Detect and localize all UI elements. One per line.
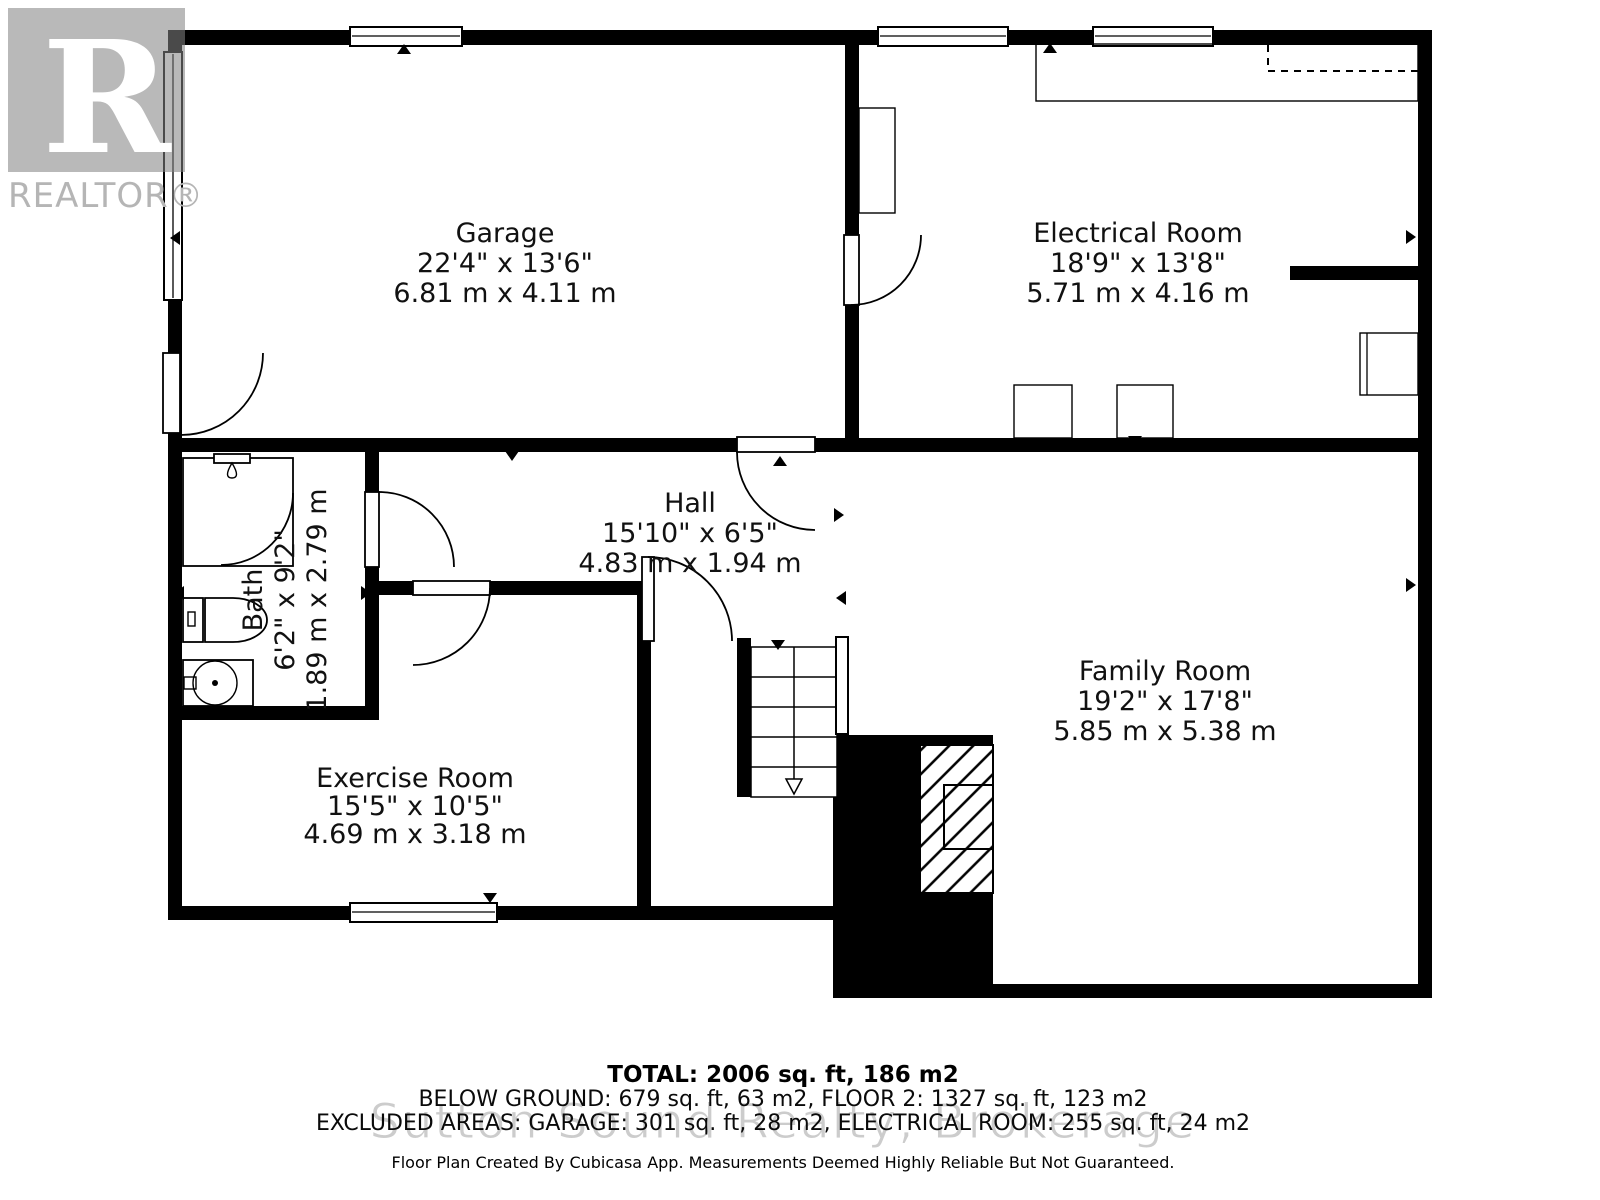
floor-plan: Garage 22'4" x 13'6" 6.81 m x 4.11 m Ele…	[0, 0, 1600, 1200]
electrical-counter	[1036, 44, 1418, 101]
toilet-tank	[183, 598, 203, 642]
appliance-1	[1014, 385, 1072, 438]
marker-right-icon	[834, 508, 844, 522]
realtor-logo-text: REALTOR®	[8, 176, 204, 216]
summary-below-ground: BELOW GROUND: 679 sq. ft, 63 m2, FLOOR 2…	[418, 1087, 1147, 1112]
garage-exterior-door-leaf	[163, 353, 180, 433]
garage-metric: 6.81 m x 4.11 m	[393, 278, 616, 309]
stairs	[751, 637, 848, 797]
bath-door-leaf	[365, 492, 379, 567]
realtor-logo-r-icon: R	[42, 6, 172, 189]
garage-name: Garage	[456, 218, 555, 249]
exercise-room-label: Exercise Room 15'5" x 10'5" 4.69 m x 3.1…	[303, 763, 526, 850]
hall-name: Hall	[664, 488, 716, 519]
marker-down-icon	[483, 893, 497, 903]
garage-electrical-door-arc	[851, 235, 921, 305]
exercise-door-leaf	[413, 581, 490, 595]
realtor-logo: R REALTOR®	[8, 6, 204, 216]
marker-right-icon	[1406, 230, 1416, 244]
bath-name: Bath	[238, 569, 269, 632]
summary-excluded-areas: EXCLUDED AREAS: GARAGE: 301 sq. ft, 28 m…	[316, 1111, 1250, 1136]
wall-stair-side	[737, 638, 751, 797]
hall-imperial: 15'10" x 6'5"	[602, 518, 778, 549]
wall-exercise-bottom	[168, 906, 833, 920]
electrical-metric: 5.71 m x 4.16 m	[1026, 278, 1249, 309]
family-metric: 5.85 m x 5.38 m	[1053, 716, 1276, 747]
sink-drain-icon	[212, 680, 218, 686]
family-name: Family Room	[1079, 656, 1251, 687]
stair-rail	[836, 637, 848, 734]
hall-metric: 4.83 m x 1.94 m	[578, 548, 801, 579]
electrical-wall-fixture	[859, 108, 895, 213]
hall-door-leaf	[737, 437, 815, 452]
electrical-dashed-area	[1268, 45, 1418, 71]
marker-down-icon	[505, 451, 519, 461]
fireplace	[920, 745, 993, 893]
electrical-name: Electrical Room	[1033, 218, 1243, 249]
marker-left-icon	[836, 591, 846, 605]
garage-imperial: 22'4" x 13'6"	[417, 248, 593, 279]
appliance-2	[1117, 385, 1173, 438]
electrical-panel	[1360, 333, 1418, 395]
wall-right	[1418, 30, 1432, 998]
hall-label: Hall 15'10" x 6'5" 4.83 m x 1.94 m	[578, 488, 801, 579]
exercise-metric: 4.69 m x 3.18 m	[303, 819, 526, 850]
wall-exercise-top	[365, 581, 651, 595]
summary-disclaimer: Floor Plan Created By Cubicasa App. Meas…	[392, 1153, 1175, 1172]
exercise-door-arc	[413, 588, 490, 665]
bath-imperial: 6'2" x 9'2"	[270, 529, 301, 671]
bath-metric: 1.89 m x 2.79 m	[302, 488, 333, 711]
marker-right-icon	[1406, 578, 1416, 592]
summary: TOTAL: 2006 sq. ft, 186 m2 BELOW GROUND:…	[316, 1062, 1250, 1172]
family-imperial: 19'2" x 17'8"	[1077, 686, 1253, 717]
wall-electrical-stub	[1290, 266, 1418, 280]
garage-label: Garage 22'4" x 13'6" 6.81 m x 4.11 m	[393, 218, 616, 309]
fireplace-hatch	[920, 745, 993, 893]
family-room-label: Family Room 19'2" x 17'8" 5.85 m x 5.38 …	[1053, 656, 1276, 747]
garage-electrical-door-leaf	[844, 235, 859, 305]
garage-exterior-door-arc	[181, 353, 263, 435]
wall-family-bottom	[985, 984, 1432, 998]
exercise-name: Exercise Room	[316, 763, 514, 794]
marker-up-icon	[773, 456, 787, 466]
summary-total: TOTAL: 2006 sq. ft, 186 m2	[607, 1062, 958, 1088]
bath-door-arc	[379, 492, 454, 567]
electrical-room-label: Electrical Room 18'9" x 13'8" 5.71 m x 4…	[1026, 218, 1249, 309]
electrical-imperial: 18'9" x 13'8"	[1050, 248, 1226, 279]
exercise-imperial: 15'5" x 10'5"	[327, 791, 503, 822]
walls	[168, 30, 1432, 998]
